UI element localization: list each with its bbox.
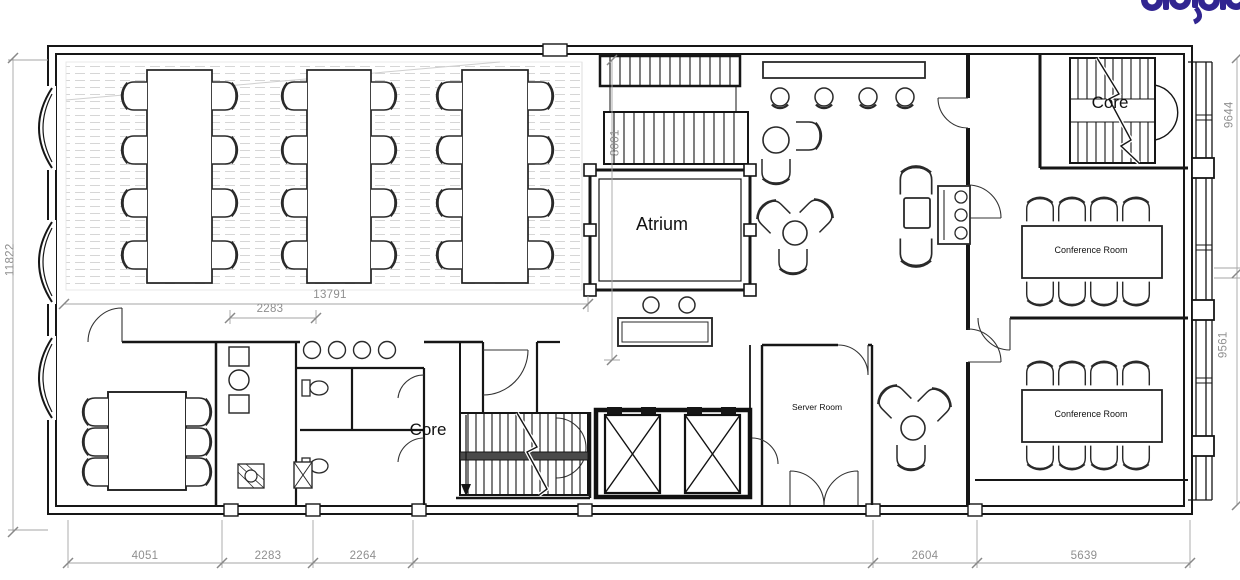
dim-bottom-2: 2283 <box>228 551 308 563</box>
lounge-furniture <box>753 62 970 274</box>
sideboard <box>229 347 249 413</box>
server-room-label: Server Room <box>757 403 877 412</box>
dim-left-height: 11822 <box>5 220 17 300</box>
toilet-1 <box>302 380 328 396</box>
conference-room-1-label: Conference Room <box>1021 246 1161 255</box>
cleaner-sink <box>238 464 264 488</box>
shaft <box>294 462 312 488</box>
core-lower-label: Core <box>368 421 488 438</box>
dim-office-width: 13791 <box>290 290 370 302</box>
dim-right-top: 9644 <box>1224 75 1236 155</box>
reception <box>618 297 712 346</box>
floor-plan-page: Atrium Core Core Conference Room Confere… <box>0 0 1240 580</box>
dim-bottom-4: 2604 <box>885 551 965 563</box>
conference-rooms <box>1022 198 1162 470</box>
lounge-cluster-2 <box>874 381 955 470</box>
dim-right-bottom: 9561 <box>1218 305 1230 385</box>
dim-bottom-5: 5639 <box>1044 551 1124 563</box>
dim-bottom-3: 2264 <box>323 551 403 563</box>
dim-atrium-height: 8001 <box>610 103 622 183</box>
meeting-room-furniture <box>83 347 249 490</box>
partial-logo <box>1141 0 1240 22</box>
dim-bottom-1: 4051 <box>105 551 185 563</box>
core-upper-label: Core <box>1050 94 1170 111</box>
open-office-furniture <box>122 70 553 283</box>
bay-windows <box>38 86 56 420</box>
floor-plan-drawing <box>0 0 1240 580</box>
sofa <box>938 186 970 244</box>
atrium-label: Atrium <box>592 215 732 233</box>
toilets <box>238 342 396 489</box>
conference-room-2-label: Conference Room <box>1021 410 1161 419</box>
dim-wc-offset: 2283 <box>230 304 310 316</box>
elevators <box>596 407 750 497</box>
